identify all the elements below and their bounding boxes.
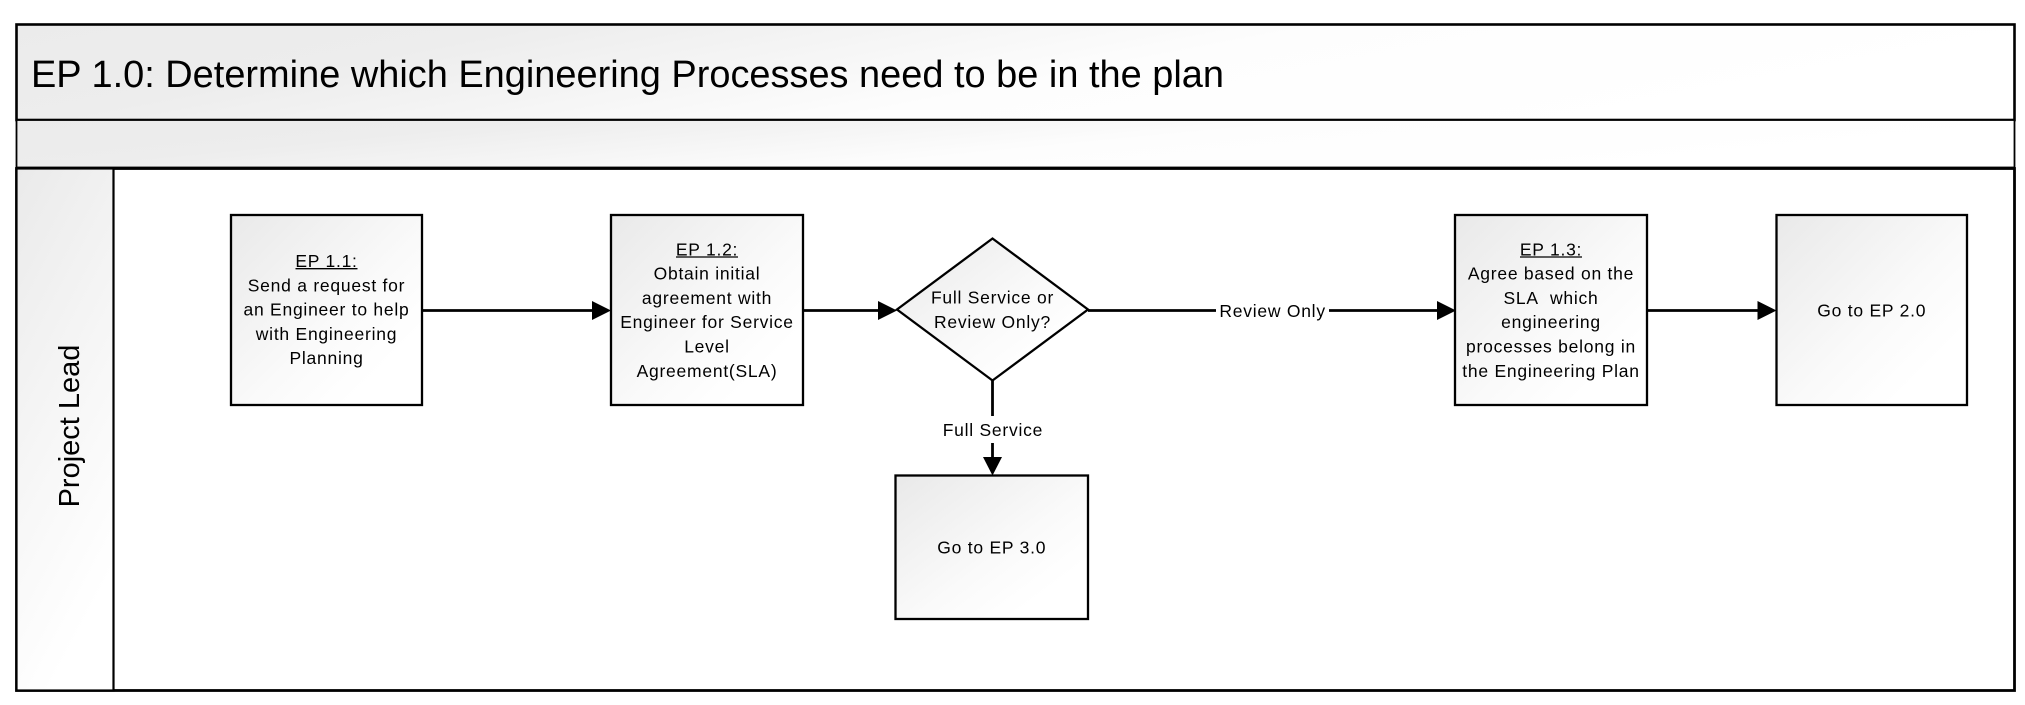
svg-text:an Engineer to help: an Engineer to help	[243, 300, 409, 320]
svg-text:engineering: engineering	[1501, 312, 1601, 332]
svg-text:EP 1.3:: EP 1.3:	[1520, 239, 1582, 259]
svg-text:with Engineering: with Engineering	[255, 324, 397, 344]
svg-text:Agree based on the: Agree based on the	[1468, 264, 1634, 284]
svg-text:Full Service: Full Service	[943, 420, 1043, 440]
svg-text:Review Only: Review Only	[1219, 301, 1325, 321]
svg-text:agreement with: agreement with	[642, 288, 772, 308]
svg-text:Go to EP 2.0: Go to EP 2.0	[1817, 301, 1926, 321]
svg-text:Planning: Planning	[289, 348, 363, 368]
svg-text:Level: Level	[684, 337, 730, 357]
svg-text:Obtain initial: Obtain initial	[654, 264, 761, 284]
svg-text:Send a request for: Send a request for	[248, 275, 405, 295]
svg-text:Engineer for Service: Engineer for Service	[620, 312, 794, 332]
svg-text:SLA which: SLA which	[1503, 288, 1598, 308]
svg-text:Project Lead: Project Lead	[54, 345, 86, 508]
svg-text:EP 1.2:: EP 1.2:	[676, 239, 738, 259]
svg-text:Review Only?: Review Only?	[934, 312, 1051, 332]
svg-text:the Engineering Plan: the Engineering Plan	[1462, 361, 1639, 381]
svg-text:EP 1.1:: EP 1.1:	[295, 251, 357, 271]
svg-text:Go to EP 3.0: Go to EP 3.0	[937, 538, 1046, 558]
svg-text:EP 1.0: Determine which Engine: EP 1.0: Determine which Engineering Proc…	[31, 54, 1224, 96]
svg-text:Full Service or: Full Service or	[931, 288, 1054, 308]
svg-text:processes belong in: processes belong in	[1466, 337, 1636, 357]
svg-text:Agreement(SLA): Agreement(SLA)	[637, 361, 778, 381]
